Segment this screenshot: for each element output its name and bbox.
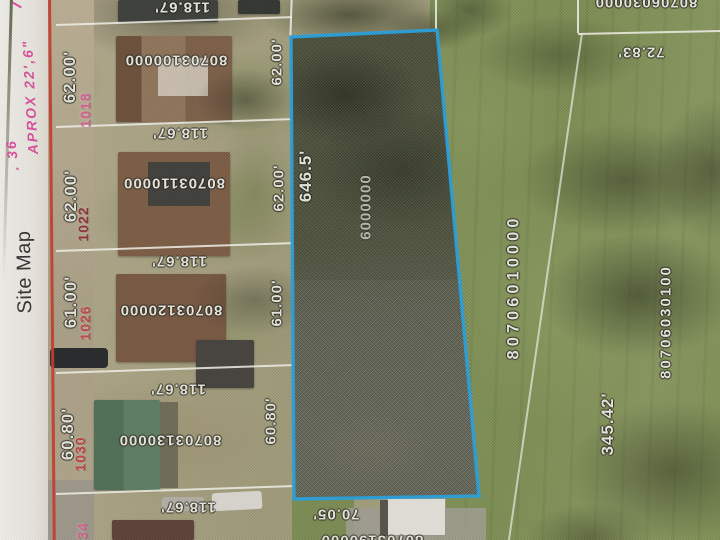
address-label: 34	[74, 522, 90, 540]
lot-width-label: 62.00'	[271, 164, 288, 211]
lot-depth-label: 118.67'	[150, 381, 206, 398]
lot-width-label: 60.80'	[263, 397, 280, 444]
highlighted-parcel-outline	[0, 0, 720, 540]
lot-depth-label: 118.67'	[151, 253, 207, 270]
lot-width-label: 72.83'	[617, 44, 664, 61]
handwritten-annotation: . 36	[2, 139, 21, 172]
lot-width-label: 61.00'	[269, 279, 286, 326]
lot-depth-label: 118.67'	[154, 0, 210, 16]
address-label: 1018	[77, 92, 93, 127]
parcel-number: 80706030100	[658, 265, 675, 379]
parcel-number: 80706030000	[595, 0, 698, 11]
parcel-number: 80703110000	[123, 175, 225, 192]
lot-length-label: 345.42'	[598, 392, 618, 455]
parcel-number: 80706010000	[505, 215, 524, 360]
parcel-number: 6000000	[358, 174, 375, 239]
parcel-number: 80703100000	[125, 52, 228, 69]
page-title: Site Map	[13, 230, 37, 313]
lot-width-label: 62.00'	[269, 38, 286, 85]
address-label: 1030	[72, 436, 88, 471]
parcel-number: 80703120000	[120, 302, 223, 319]
lot-width-label: 70.05'	[312, 506, 359, 523]
lot-depth-label: 118.67'	[160, 499, 216, 516]
lot-length-label: 646.5'	[296, 150, 316, 203]
lot-depth-label: 118.67'	[152, 125, 208, 142]
site-map-photo: 62.00' 1018 62.00' 80703100000 118.67' 6…	[0, 0, 720, 540]
address-label: 1026	[77, 305, 93, 340]
address-label: 1022	[75, 206, 91, 241]
parcel-number: 80703190000	[321, 532, 424, 540]
parcel-number: 80703130000	[119, 432, 222, 449]
